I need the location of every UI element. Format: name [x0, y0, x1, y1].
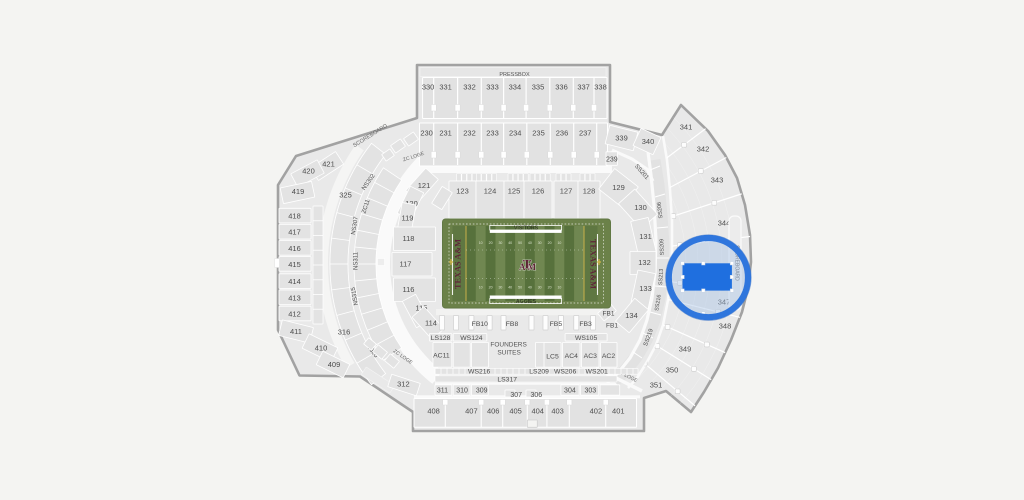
svg-text:237: 237 [579, 129, 592, 138]
svg-text:FB1: FB1 [606, 323, 618, 330]
svg-text:310: 310 [456, 388, 468, 395]
svg-text:AGGIES: AGGIES [516, 299, 537, 305]
svg-text:304: 304 [564, 388, 576, 395]
svg-text:330: 330 [422, 83, 435, 92]
svg-text:407: 407 [465, 406, 478, 415]
svg-text:414: 414 [288, 277, 301, 286]
svg-text:AC2: AC2 [602, 353, 615, 360]
svg-text:306: 306 [530, 392, 542, 399]
svg-text:FOUNDERS: FOUNDERS [490, 342, 527, 349]
svg-text:10: 10 [479, 286, 483, 290]
svg-text:331: 331 [439, 83, 452, 92]
svg-text:406: 406 [487, 406, 500, 415]
svg-text:WS206: WS206 [554, 368, 577, 375]
svg-text:325: 325 [339, 191, 352, 200]
svg-text:303: 303 [584, 388, 596, 395]
svg-text:AC11: AC11 [433, 352, 450, 359]
svg-text:410: 410 [315, 344, 328, 353]
svg-text:351: 351 [650, 381, 663, 390]
svg-text:408: 408 [427, 406, 440, 415]
svg-text:340: 340 [642, 137, 655, 146]
svg-text:50: 50 [518, 241, 522, 245]
svg-text:311: 311 [437, 388, 448, 395]
svg-text:SS213: SS213 [658, 269, 665, 286]
svg-text:30: 30 [498, 241, 502, 245]
svg-text:405: 405 [509, 406, 522, 415]
svg-text:235: 235 [532, 129, 545, 138]
svg-text:234: 234 [509, 129, 522, 138]
svg-text:LS128: LS128 [431, 335, 451, 342]
svg-text:124: 124 [484, 187, 497, 196]
svg-text:TEXAS A&M: TEXAS A&M [454, 239, 463, 289]
svg-text:116: 116 [403, 285, 415, 294]
svg-text:343: 343 [711, 176, 724, 185]
svg-text:AC4: AC4 [565, 353, 578, 360]
svg-text:40: 40 [528, 286, 532, 290]
svg-text:232: 232 [463, 129, 476, 138]
svg-text:AC3: AC3 [584, 353, 597, 360]
svg-text:50: 50 [518, 286, 522, 290]
svg-text:40: 40 [508, 286, 512, 290]
svg-text:20: 20 [489, 286, 493, 290]
svg-text:VISITORS: VISITORS [514, 225, 539, 231]
svg-text:133: 133 [639, 284, 652, 293]
svg-text:411: 411 [290, 327, 302, 336]
svg-text:334: 334 [509, 83, 522, 92]
svg-text:404: 404 [531, 406, 544, 415]
svg-text:126: 126 [532, 187, 545, 196]
svg-text:118: 118 [403, 234, 415, 243]
svg-text:SUITES: SUITES [497, 350, 521, 357]
svg-text:333: 333 [486, 83, 499, 92]
svg-text:NS311: NS311 [353, 251, 359, 270]
svg-text:418: 418 [288, 212, 301, 221]
svg-text:421: 421 [322, 160, 335, 169]
svg-text:348: 348 [719, 322, 732, 331]
svg-text:409: 409 [328, 360, 341, 369]
svg-text:419: 419 [292, 187, 305, 196]
svg-text:10: 10 [479, 241, 483, 245]
svg-text:WS216: WS216 [468, 368, 491, 375]
svg-text:403: 403 [551, 406, 564, 415]
svg-text:233: 233 [486, 129, 499, 138]
svg-text:344: 344 [718, 219, 731, 228]
svg-text:132: 132 [638, 258, 651, 267]
svg-text:342: 342 [697, 145, 710, 154]
svg-text:123: 123 [456, 187, 469, 196]
svg-text:420: 420 [302, 167, 315, 176]
svg-text:129: 129 [612, 183, 625, 192]
svg-text:350: 350 [666, 366, 679, 375]
svg-text:40: 40 [508, 241, 512, 245]
svg-text:127: 127 [560, 187, 573, 196]
svg-text:341: 341 [680, 123, 693, 132]
svg-text:LS209: LS209 [529, 368, 549, 375]
svg-text:FB3: FB3 [579, 321, 592, 328]
svg-text:125: 125 [508, 187, 521, 196]
svg-text:TEXAS A&M: TEXAS A&M [589, 239, 598, 289]
svg-text:338: 338 [594, 83, 607, 92]
svg-text:40: 40 [528, 241, 532, 245]
svg-text:LC5: LC5 [546, 354, 559, 361]
svg-text:307: 307 [510, 392, 522, 399]
svg-text:FB5: FB5 [550, 321, 563, 328]
svg-text:335: 335 [532, 83, 545, 92]
svg-text:LS317: LS317 [497, 376, 517, 383]
svg-text:10: 10 [557, 241, 561, 245]
svg-text:339: 339 [615, 134, 628, 143]
svg-text:412: 412 [288, 310, 301, 319]
svg-text:30: 30 [538, 241, 542, 245]
svg-text:402: 402 [590, 406, 603, 415]
svg-text:417: 417 [288, 228, 301, 237]
svg-text:401: 401 [612, 406, 625, 415]
svg-text:SS209: SS209 [659, 239, 666, 256]
svg-text:239: 239 [606, 156, 618, 163]
svg-text:20: 20 [489, 241, 493, 245]
svg-text:316: 316 [338, 328, 351, 337]
svg-text:WS124: WS124 [460, 335, 483, 342]
svg-text:336: 336 [555, 83, 568, 92]
svg-text:416: 416 [288, 244, 301, 253]
svg-text:WS201: WS201 [586, 368, 609, 375]
svg-text:231: 231 [439, 129, 452, 138]
svg-text:114: 114 [425, 319, 437, 328]
svg-text:312: 312 [397, 380, 410, 389]
svg-text:309: 309 [476, 388, 488, 395]
svg-text:413: 413 [288, 293, 301, 302]
svg-text:131: 131 [639, 232, 652, 241]
svg-text:128: 128 [583, 187, 596, 196]
svg-text:117: 117 [400, 260, 412, 269]
svg-text:236: 236 [556, 129, 569, 138]
svg-text:20: 20 [548, 286, 552, 290]
svg-text:130: 130 [634, 203, 647, 212]
svg-text:FB10: FB10 [472, 321, 488, 328]
svg-text:337: 337 [577, 83, 590, 92]
svg-text:415: 415 [288, 260, 301, 269]
svg-text:30: 30 [498, 286, 502, 290]
svg-text:30: 30 [538, 286, 542, 290]
svg-text:349: 349 [679, 345, 692, 354]
svg-text:10: 10 [557, 286, 561, 290]
svg-text:332: 332 [463, 83, 476, 92]
svg-text:T: T [523, 257, 532, 272]
svg-text:FB8: FB8 [506, 321, 519, 328]
svg-text:20: 20 [548, 241, 552, 245]
svg-text:119: 119 [402, 214, 414, 223]
svg-text:WS105: WS105 [575, 335, 598, 342]
svg-text:FB1: FB1 [603, 311, 615, 318]
svg-text:230: 230 [420, 129, 433, 138]
svg-text:134: 134 [625, 311, 638, 320]
svg-text:121: 121 [418, 181, 431, 190]
